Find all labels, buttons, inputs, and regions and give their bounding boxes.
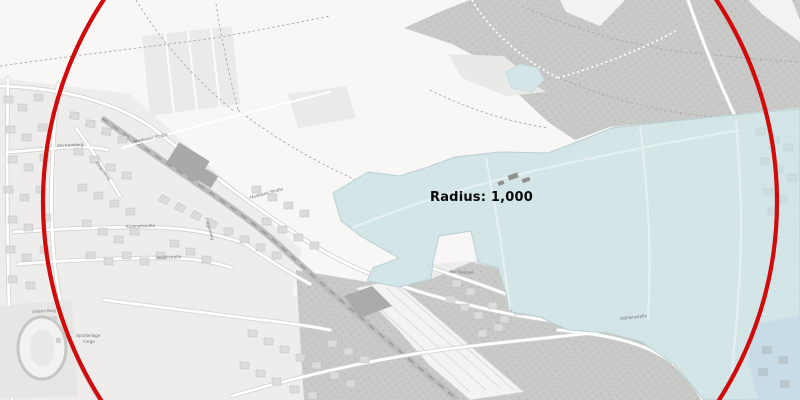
street-label: Heidestraße [157, 255, 182, 260]
street-label: Sportanlage [76, 334, 100, 339]
radius-label: Radius: 1,000 [430, 190, 533, 205]
street-label: Am Stausee [449, 270, 474, 275]
sports-ground [0, 300, 78, 398]
map-base [0, 0, 800, 400]
street-label: Am Kamberg [57, 143, 83, 148]
map-canvas[interactable]: Radius: 1,000 Am KambergMuskauer StraßeZ… [0, 0, 800, 400]
street-label: Forge [83, 340, 95, 345]
